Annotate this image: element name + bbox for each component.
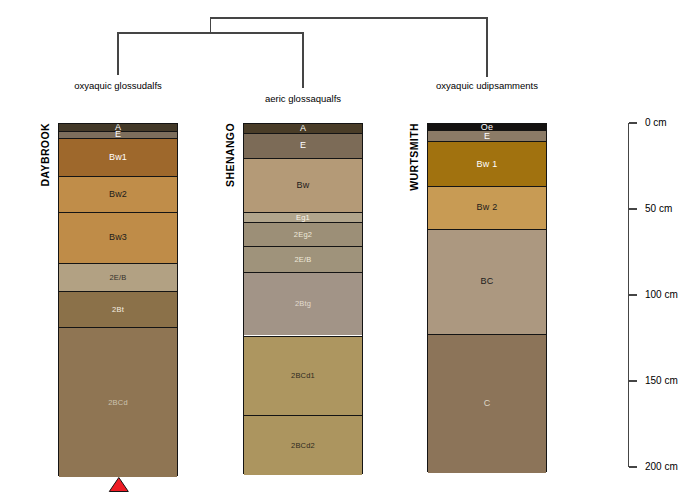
horizon-bw1: Bw1 <box>59 138 177 176</box>
horizon-label: 2E/B <box>294 256 311 264</box>
horizon-label: 2Bt <box>112 306 124 314</box>
horizon-2e-b: 2E/B <box>244 246 362 272</box>
horizon-label: 2BCd1 <box>291 372 315 380</box>
horizon-2bt: 2Bt <box>59 291 177 327</box>
profile-name-label: WURTSMITH <box>408 123 420 191</box>
horizon-2e-b: 2E/B <box>59 263 177 291</box>
horizon-bw-2: Bw 2 <box>428 186 546 229</box>
horizon-label: 2E/B <box>109 274 126 282</box>
horizon-label: BC <box>481 277 494 286</box>
horizon-a: A <box>244 124 362 133</box>
dendrogram-lines <box>118 18 487 88</box>
horizon-label: E <box>300 141 306 150</box>
horizon-label: 2BCd <box>108 399 128 407</box>
horizon-2bcd: 2BCd <box>59 327 177 477</box>
profile-daybrook: AEBw1Bw2Bw32E/B2Bt2BCd <box>58 123 178 476</box>
taxon-label: aeric glossaqualfs <box>265 93 341 104</box>
horizon-bw3: Bw3 <box>59 212 177 264</box>
depth-tick-label: 150 cm <box>645 375 678 387</box>
horizon-label: 2BCd2 <box>291 442 315 450</box>
horizon-2eg2: 2Eg2 <box>244 222 362 246</box>
horizon-label: C <box>484 399 491 408</box>
horizon-e: E <box>428 130 546 141</box>
horizon-label: A <box>300 124 306 133</box>
soil-profile-dendrogram-figure: AEBw1Bw2Bw32E/B2Bt2BCdAEBwEg12Eg22E/B2Bt… <box>0 0 700 500</box>
horizon-label: 2Btg <box>295 300 311 308</box>
profile-name-label: SHENANGO <box>224 123 236 187</box>
depth-tick-label: 0 cm <box>645 117 667 129</box>
depth-tick-label: 100 cm <box>645 289 678 301</box>
horizon-label: Bw1 <box>109 153 127 162</box>
taxon-label: oxyaquic udipsamments <box>436 80 538 91</box>
horizon-c: C <box>428 334 546 473</box>
depth-tick-label: 200 cm <box>645 461 678 473</box>
horizon-bw-1: Bw 1 <box>428 141 546 186</box>
profile-shenango: AEBwEg12Eg22E/B2Btg2BCd12BCd2 <box>243 123 363 474</box>
horizon-label: 2Eg2 <box>294 231 312 239</box>
profile-name-label: DAYBROOK <box>39 123 51 187</box>
horizon-e: E <box>244 133 362 159</box>
horizon-label: Bw 1 <box>477 160 498 169</box>
profile-wurtsmith: OeEBw 1Bw 2BCC <box>427 123 547 472</box>
horizon-label: Bw <box>297 181 310 190</box>
horizon-label: Bw3 <box>109 233 127 242</box>
horizon-label: Eg1 <box>296 214 310 222</box>
horizon-eg1: Eg1 <box>244 212 362 222</box>
horizon-2btg: 2Btg <box>244 272 362 336</box>
horizon-bw: Bw <box>244 158 362 211</box>
horizon-label: Bw2 <box>109 190 127 199</box>
depth-tick-label: 50 cm <box>645 203 672 215</box>
horizon-bw2: Bw2 <box>59 176 177 212</box>
horizon-2bcd2: 2BCd2 <box>244 415 362 475</box>
horizon-label: Bw 2 <box>477 203 498 212</box>
horizon-label: E <box>484 132 490 141</box>
depth-axis-line <box>629 123 638 467</box>
taxon-label: oxyaquic glossudalfs <box>74 80 162 91</box>
horizon-e: E <box>59 131 177 138</box>
horizon-2bcd1: 2BCd1 <box>244 336 362 415</box>
horizon-bc: BC <box>428 229 546 334</box>
profile-marker-triangle <box>109 478 128 492</box>
